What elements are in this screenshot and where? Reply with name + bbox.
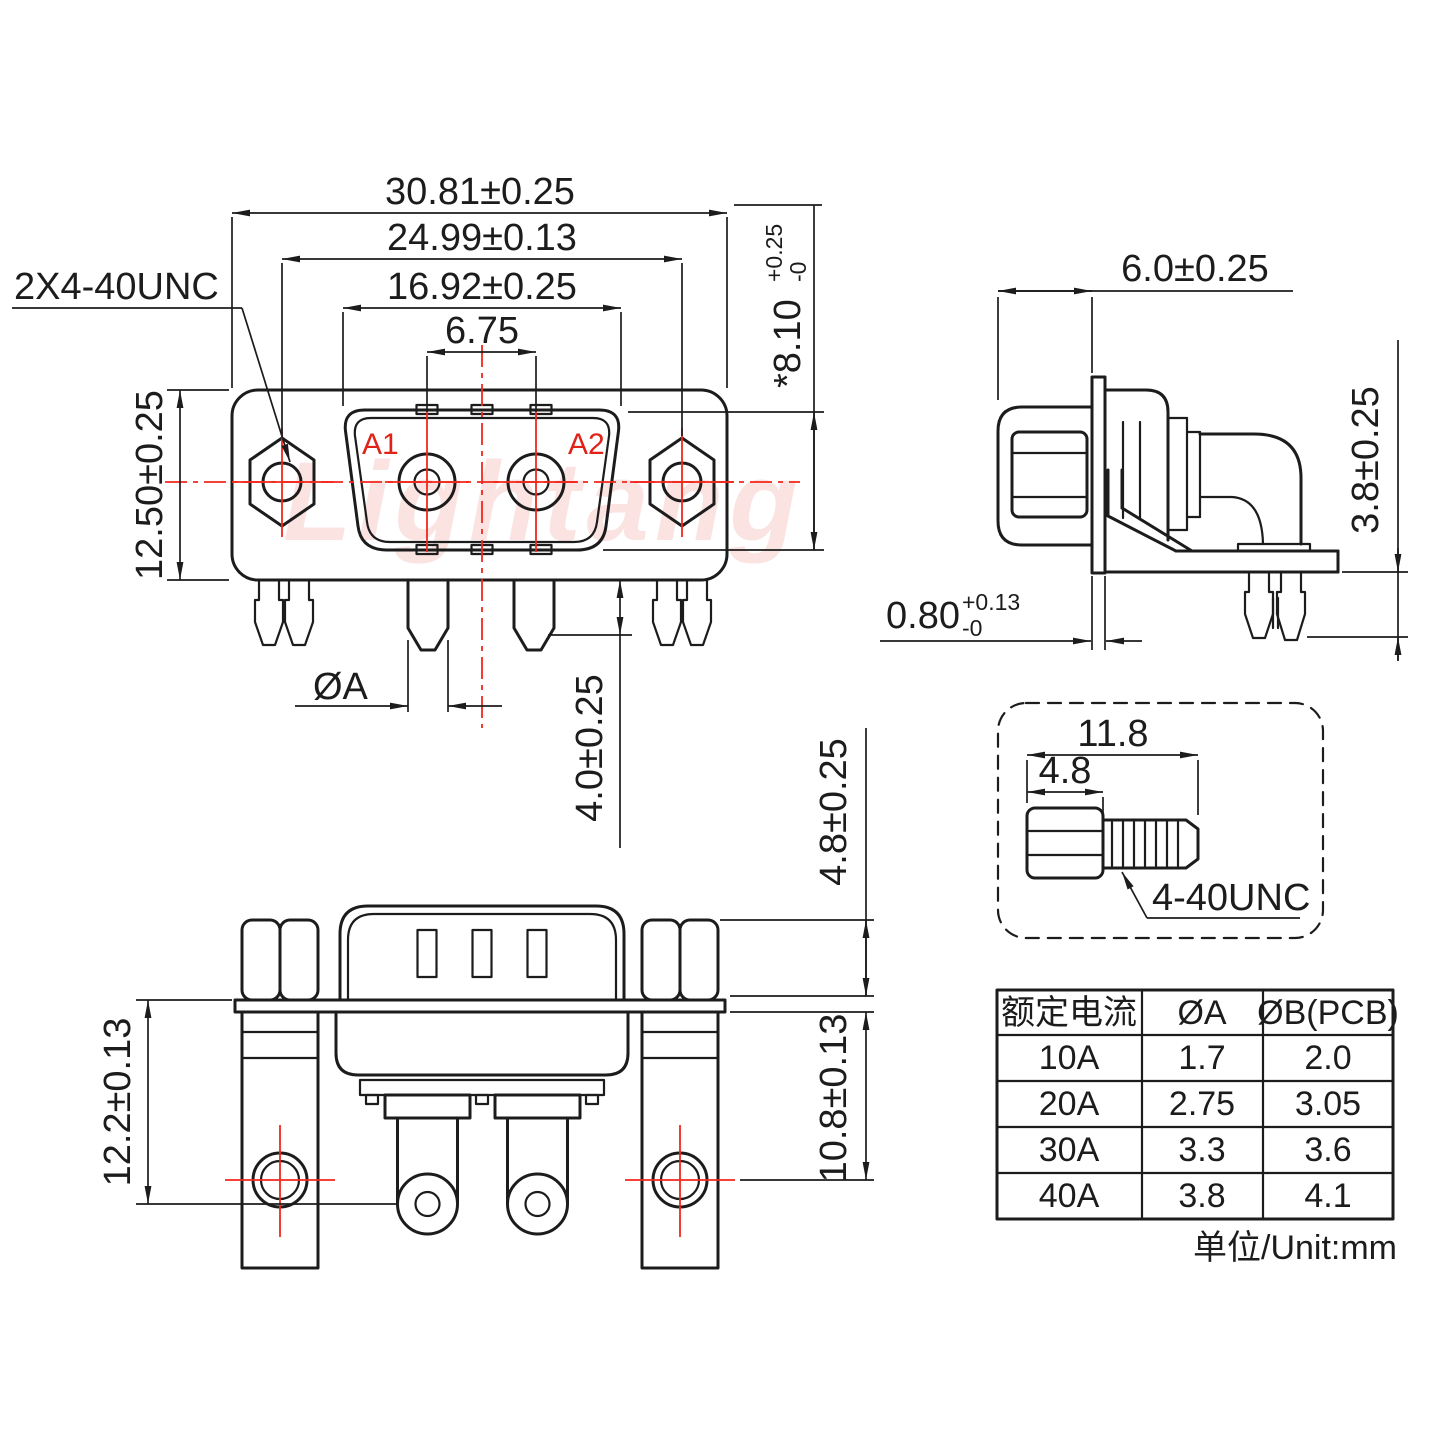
svg-text:2.75: 2.75 (1169, 1085, 1235, 1123)
table-row: 30A 3.3 3.6 (1039, 1131, 1352, 1169)
side-arm-inner (1200, 497, 1263, 544)
plan-pin2-shoulder (495, 1095, 580, 1118)
plan-flange (235, 1000, 725, 1012)
side-dimensions: 6.0±0.25 3.8±0.25 0.80 +0.13 -0 (880, 248, 1408, 661)
svg-text:3.05: 3.05 (1295, 1085, 1361, 1123)
plan-view: 4.8±0.25 12.2±0.13 10.8±0.13 (97, 728, 874, 1268)
table-header-current: 额定电流 (1001, 994, 1137, 1032)
table-row: 40A 3.8 4.1 (1039, 1177, 1352, 1215)
unit-note: 单位/Unit:mm (1193, 1229, 1397, 1267)
svg-text:3.3: 3.3 (1178, 1131, 1225, 1169)
plan-housing-inner (348, 914, 616, 1000)
dim-overall-width: 30.81±0.25 (385, 171, 575, 213)
dim-flange-to-pin-hole: 12.2±0.13 (97, 1018, 139, 1187)
side-steps (1168, 418, 1200, 530)
side-flange (1092, 377, 1105, 573)
front-board-locks (255, 580, 711, 645)
svg-text:20A: 20A (1039, 1085, 1100, 1123)
plan-housing-outer (340, 906, 624, 1000)
svg-text:+0.13: +0.13 (962, 589, 1020, 615)
engineering-drawing-page: Lightang (0, 0, 1440, 1440)
side-pad (1238, 544, 1310, 551)
plan-contact-slots (418, 930, 547, 977)
plan-insulator-block (336, 1012, 628, 1075)
svg-text:40A: 40A (1039, 1177, 1100, 1215)
plan-crosshairs (225, 1125, 735, 1237)
svg-text:30A: 30A (1039, 1131, 1100, 1169)
plan-shoulder-plate (360, 1080, 604, 1095)
screw-threaded-stud (1103, 820, 1198, 868)
dim-body-height: 12.50±0.25 (129, 390, 171, 580)
side-pins (1245, 572, 1305, 640)
dim-mount-spacing: 24.99±0.13 (387, 217, 577, 259)
svg-text:-0: -0 (785, 262, 811, 282)
svg-text:1.7: 1.7 (1178, 1039, 1225, 1077)
table-row: 20A 2.75 3.05 (1039, 1085, 1361, 1123)
pin-a1-label: A1 (362, 428, 399, 461)
dim-flange-to-mount-hole: 10.8±0.13 (813, 1014, 855, 1183)
svg-text:10A: 10A (1039, 1039, 1100, 1077)
front-pin-a1-tail (408, 580, 448, 650)
plan-pin1-shoulder (385, 1095, 470, 1118)
plan-pin2-hole (526, 1192, 550, 1216)
plan-dimensions: 4.8±0.25 12.2±0.13 10.8±0.13 (97, 728, 874, 1204)
svg-text:4.1: 4.1 (1304, 1177, 1351, 1215)
dim-pin-tip-length: 4.0±0.25 (569, 674, 611, 822)
svg-text:*8.10: *8.10 (767, 299, 809, 388)
dim-front-depth: 6.0±0.25 (1121, 248, 1269, 290)
pin-a2-label: A2 (568, 428, 605, 461)
plan-pin1-hole (416, 1192, 440, 1216)
svg-text:+0.25: +0.25 (761, 224, 787, 282)
callout-screw-thread: 4-40UNC (1152, 877, 1310, 919)
side-arm-outer (1200, 434, 1301, 544)
dim-screw-length: 11.8 (1077, 713, 1148, 755)
dim-nut-height: 4.8±0.25 (813, 738, 855, 886)
side-view: 6.0±0.25 3.8±0.25 0.80 +0.13 -0 (880, 248, 1408, 661)
plan-pin-shafts (398, 1118, 568, 1204)
screw-hex-head (1027, 808, 1103, 878)
dim-flange-thickness: 0.80 +0.13 -0 (886, 589, 1020, 641)
plan-brackets (242, 1012, 718, 1268)
dim-bracket-height: 3.8±0.25 (1345, 386, 1387, 534)
dim-shell-width: 16.92±0.25 (387, 266, 577, 308)
spec-table: 额定电流 ØA ØB(PCB) 10A 1.7 2.0 20A 2.75 3.0… (997, 990, 1399, 1267)
plan-pin2-pad (508, 1174, 568, 1234)
svg-text:0.80: 0.80 (886, 595, 960, 637)
dim-shell-height: *8.10 +0.25 -0 (761, 224, 811, 388)
side-hex-standoff (1012, 432, 1087, 517)
table-header-dia-a: ØA (1177, 994, 1226, 1032)
dim-pin-pitch: 6.75 (445, 310, 519, 352)
dim-pin-diameter: ØA (313, 666, 369, 708)
svg-text:3.8: 3.8 (1178, 1177, 1225, 1215)
table-row: 10A 1.7 2.0 (1039, 1039, 1352, 1077)
plan-hex-nuts (242, 920, 718, 1000)
svg-text:3.6: 3.6 (1304, 1131, 1351, 1169)
callout-mount-thread: 2X4-40UNC (14, 266, 219, 308)
plan-pin1-pad (398, 1174, 458, 1234)
svg-text:2.0: 2.0 (1304, 1039, 1351, 1077)
side-bracket (1107, 470, 1338, 572)
screw-detail: 11.8 4.8 4-40UNC (998, 703, 1323, 938)
drawing-canvas: Lightang (0, 0, 1440, 1440)
dim-screw-head-length: 4.8 (1039, 750, 1092, 792)
front-pin-a2-tail (514, 580, 554, 650)
screw-threads (1112, 822, 1178, 866)
table-header-dia-b: ØB(PCB) (1257, 994, 1399, 1032)
svg-text:-0: -0 (962, 615, 982, 641)
